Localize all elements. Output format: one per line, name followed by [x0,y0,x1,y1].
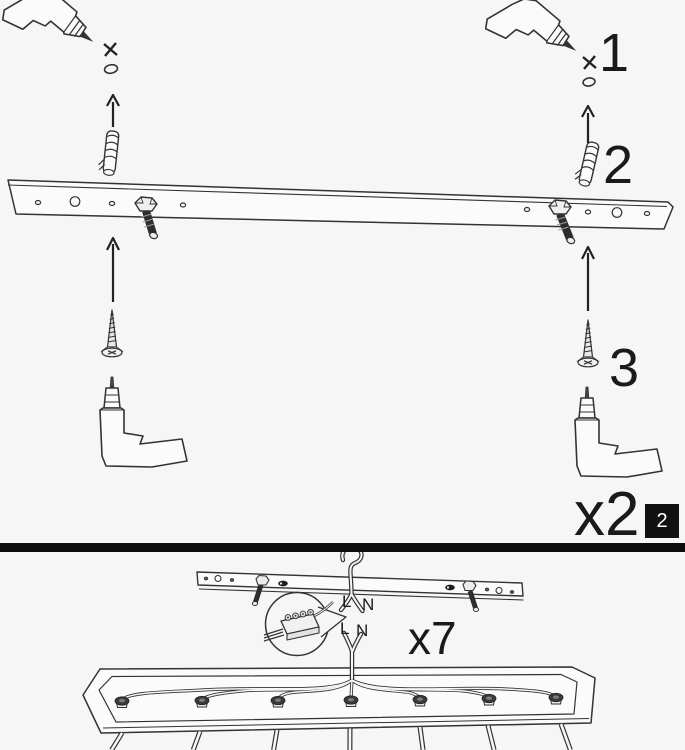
screw-left-icon [102,310,122,357]
rail-keyhole [445,585,455,591]
drill-top-left-icon [0,0,104,68]
wire-label-fixture-neutral: N [356,622,368,639]
mounting-bar [8,180,673,229]
wiring-panel-illustration [83,547,595,750]
terminal-callout [264,593,346,656]
rail-bolt-right-icon [463,581,479,612]
rail-hole [485,588,489,591]
instruction-page: 1 2 3 x2 2 L N L N x7 [0,0,685,750]
arrow-up-right-icon [582,106,594,143]
arrow-up-bottom-left-icon [107,238,119,302]
wall-plug-left-icon [98,130,120,176]
wire-label-supply-neutral: N [362,596,374,613]
step-number-1: 1 [590,26,638,80]
page-number-badge: 2 [645,504,679,538]
rail-keyhole [278,581,288,587]
multiplier-label: x7 [408,615,457,661]
drill-bottom-right-icon [575,387,662,477]
ceiling-cable [341,547,363,682]
rail-hole [204,577,208,580]
rail-hole [230,579,234,582]
arrow-up-left-icon [107,95,119,127]
canopy-box [83,667,595,733]
arrow-up-bottom-right-icon [582,247,594,311]
rail-hole [510,591,514,594]
step-number-2: 2 [594,138,642,192]
drill-top-right-icon [482,0,587,77]
bolt-left-icon [135,197,158,240]
quantity-label: x2 [574,484,639,546]
drill-hole-left [104,64,118,75]
section-divider [0,543,685,552]
x-mark-left-icon [104,43,117,56]
wire-label-fixture-live: L [340,620,349,637]
screw-right-icon [578,320,598,367]
step-panel-illustration [0,0,673,477]
step-number-3: 3 [600,341,648,395]
drill-bottom-left-icon [100,377,187,467]
wire-label-supply-live: L [342,593,351,610]
